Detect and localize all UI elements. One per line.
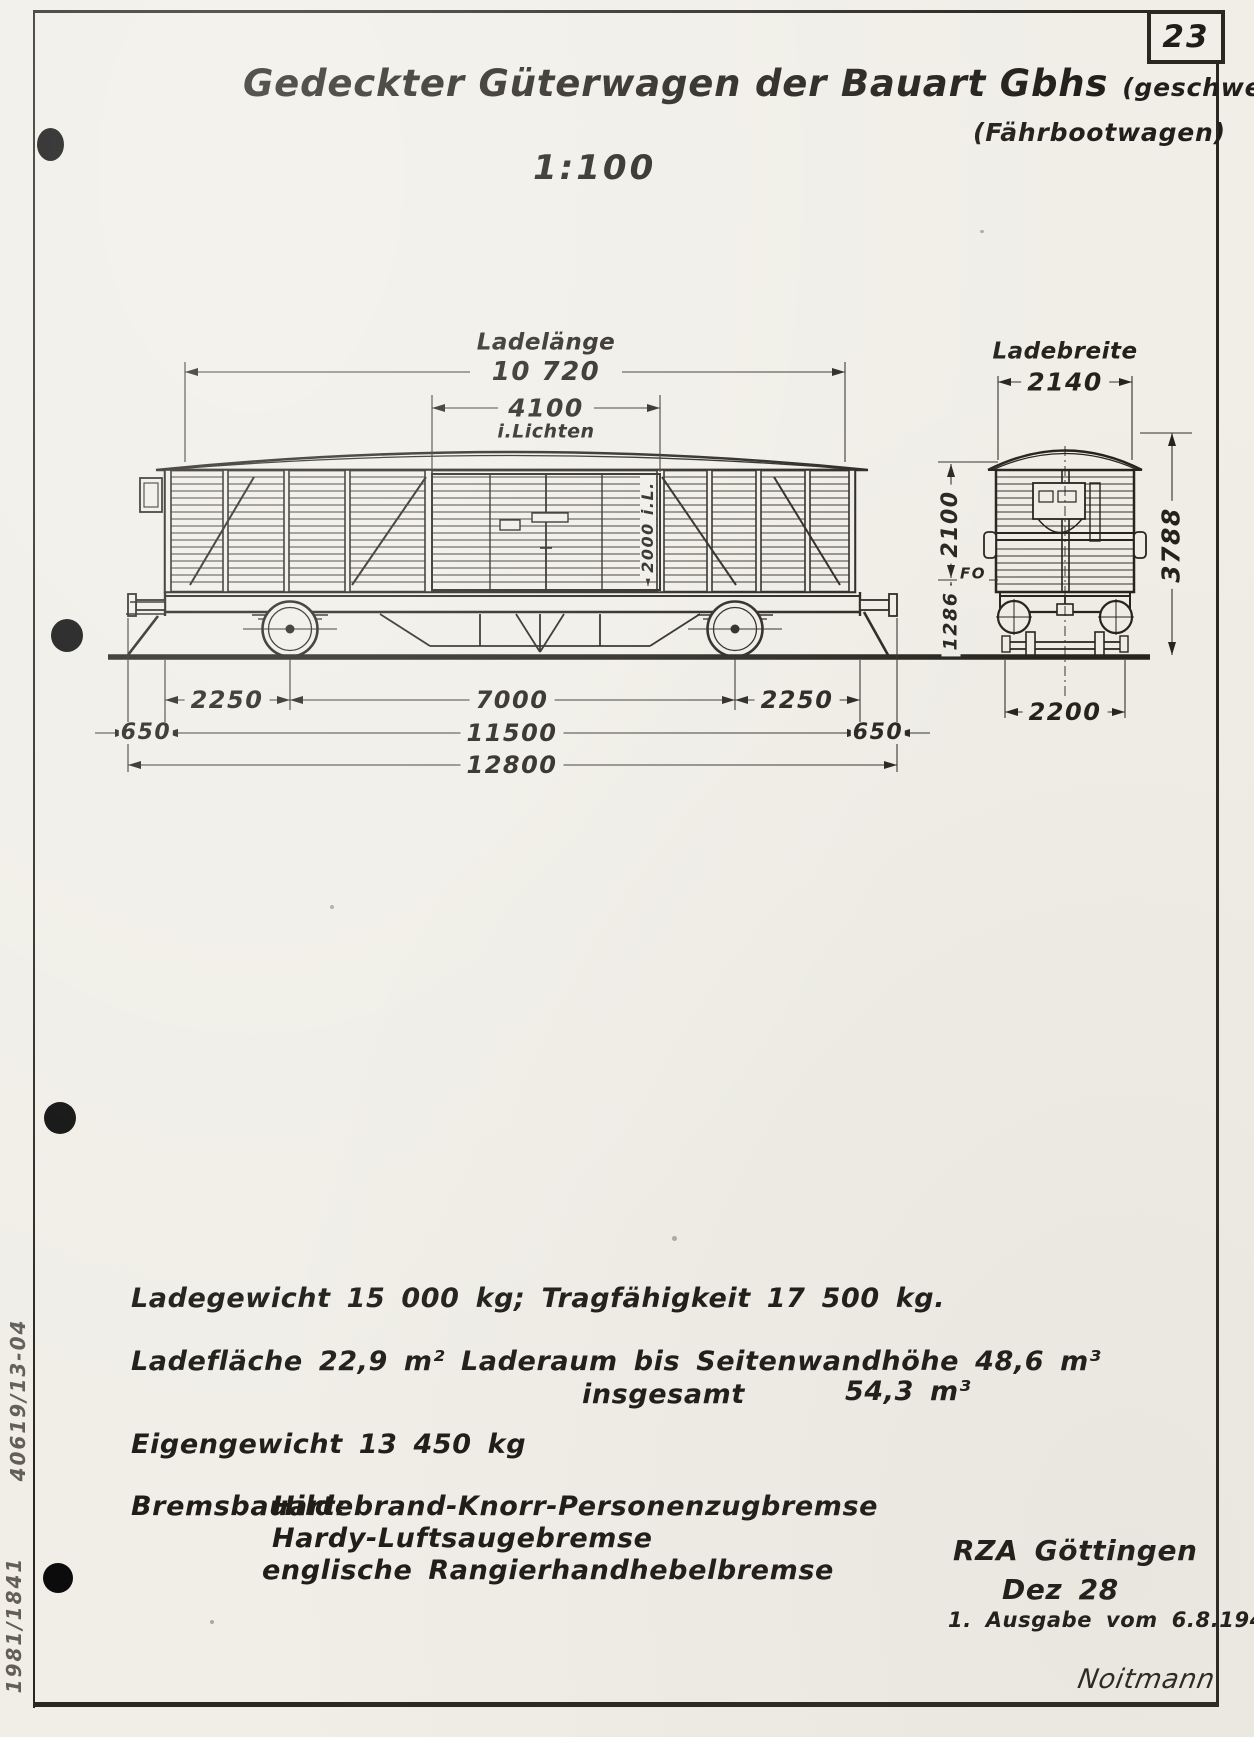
spec-total-value: 54,3 m³: [845, 1375, 971, 1409]
dim-label-ladebreite: Ladebreite: [986, 341, 1143, 364]
dim-note-door-width: i.Lichten: [491, 423, 600, 442]
page-number-box: 23: [1147, 10, 1225, 64]
title-subtitle: (Fährbootwagen): [973, 118, 1226, 147]
border-bottom: [33, 1702, 1219, 1707]
scan-speck: [672, 1236, 677, 1241]
dim-value-door-height: 2000 i.L.: [640, 475, 656, 578]
spec-brake-3: englische Rangierhandhebelbremse: [262, 1554, 834, 1588]
dim-value-axle-spacing: 7000: [470, 688, 555, 712]
dim-value-axle-right: 2250: [755, 688, 840, 712]
dim-value-ladebreite: 2140: [1021, 370, 1109, 395]
margin-annotation-lower: 1981/1841: [2, 1557, 26, 1694]
spec-brake-2: Hardy-Luftsaugebremse: [272, 1522, 653, 1556]
border-right: [1216, 10, 1219, 1706]
title-main: Gedeckter Güterwagen der Bauart Gbhs: [243, 62, 1108, 105]
punch-hole: [43, 1563, 73, 1593]
dim-value-ladelaenge: 10 720: [486, 359, 607, 385]
dim-value-inner-height: 2100: [940, 484, 962, 563]
margin-annotation-upper: 40619/13-04: [6, 1319, 30, 1482]
footer-edition: 1. Ausgabe vom 6.8.1948: [948, 1607, 1254, 1633]
scan-speck: [330, 905, 334, 909]
side-view: [126, 452, 897, 657]
punch-hole: [44, 1102, 76, 1134]
dim-value-total-length: 12800: [461, 753, 564, 777]
title-weld-note: (geschweißt): [1122, 73, 1254, 102]
spec-own-weight: Eigengewicht 13 450 kg: [131, 1428, 526, 1462]
drawing-scale: 1:100: [533, 148, 656, 188]
spec-total-label: insgesamt: [582, 1378, 745, 1412]
dim-value-door-width: 4100: [502, 396, 590, 421]
border-top: [33, 10, 1219, 13]
dim-value-axle-left: 2250: [185, 688, 270, 712]
punch-hole: [37, 128, 64, 161]
dim-label-floor: FO: [957, 567, 989, 582]
dim-value-frame-length: 11500: [461, 721, 564, 745]
footer-signature: Noitmann: [1075, 1663, 1218, 1697]
drawing-title: Gedeckter Güterwagen der Bauart Gbhs (ge…: [243, 62, 1254, 105]
dim-value-overhang-right: 650: [851, 722, 905, 744]
spec-load-area: Ladefläche 22,9 m² Laderaum bis Seitenwa…: [131, 1345, 1101, 1379]
end-view: [984, 446, 1146, 722]
dim-label-ladelaenge: Ladelänge: [471, 332, 622, 355]
scanned-drawing-sheet: { "page": { "number": "23" }, "title": {…: [0, 0, 1254, 1737]
page-number: 23: [1162, 19, 1209, 55]
dim-value-total-height: 3788: [1159, 501, 1184, 589]
dim-value-overhang-left: 650: [119, 722, 173, 744]
scan-speck: [980, 230, 984, 233]
footer-date: Dez 28: [1002, 1572, 1119, 1607]
spec-load-weight: Ladegewicht 15 000 kg; Tragfähigkeit 17 …: [131, 1282, 945, 1316]
footer-office: RZA Göttingen: [953, 1533, 1198, 1568]
scan-speck: [210, 1620, 214, 1624]
dim-value-axle-guard: 2200: [1023, 700, 1108, 724]
spec-brake-1: Hildebrand-Knorr-Personenzugbremse: [272, 1490, 878, 1524]
border-left: [33, 10, 35, 1708]
dim-value-floor-height: 1286: [942, 586, 961, 657]
